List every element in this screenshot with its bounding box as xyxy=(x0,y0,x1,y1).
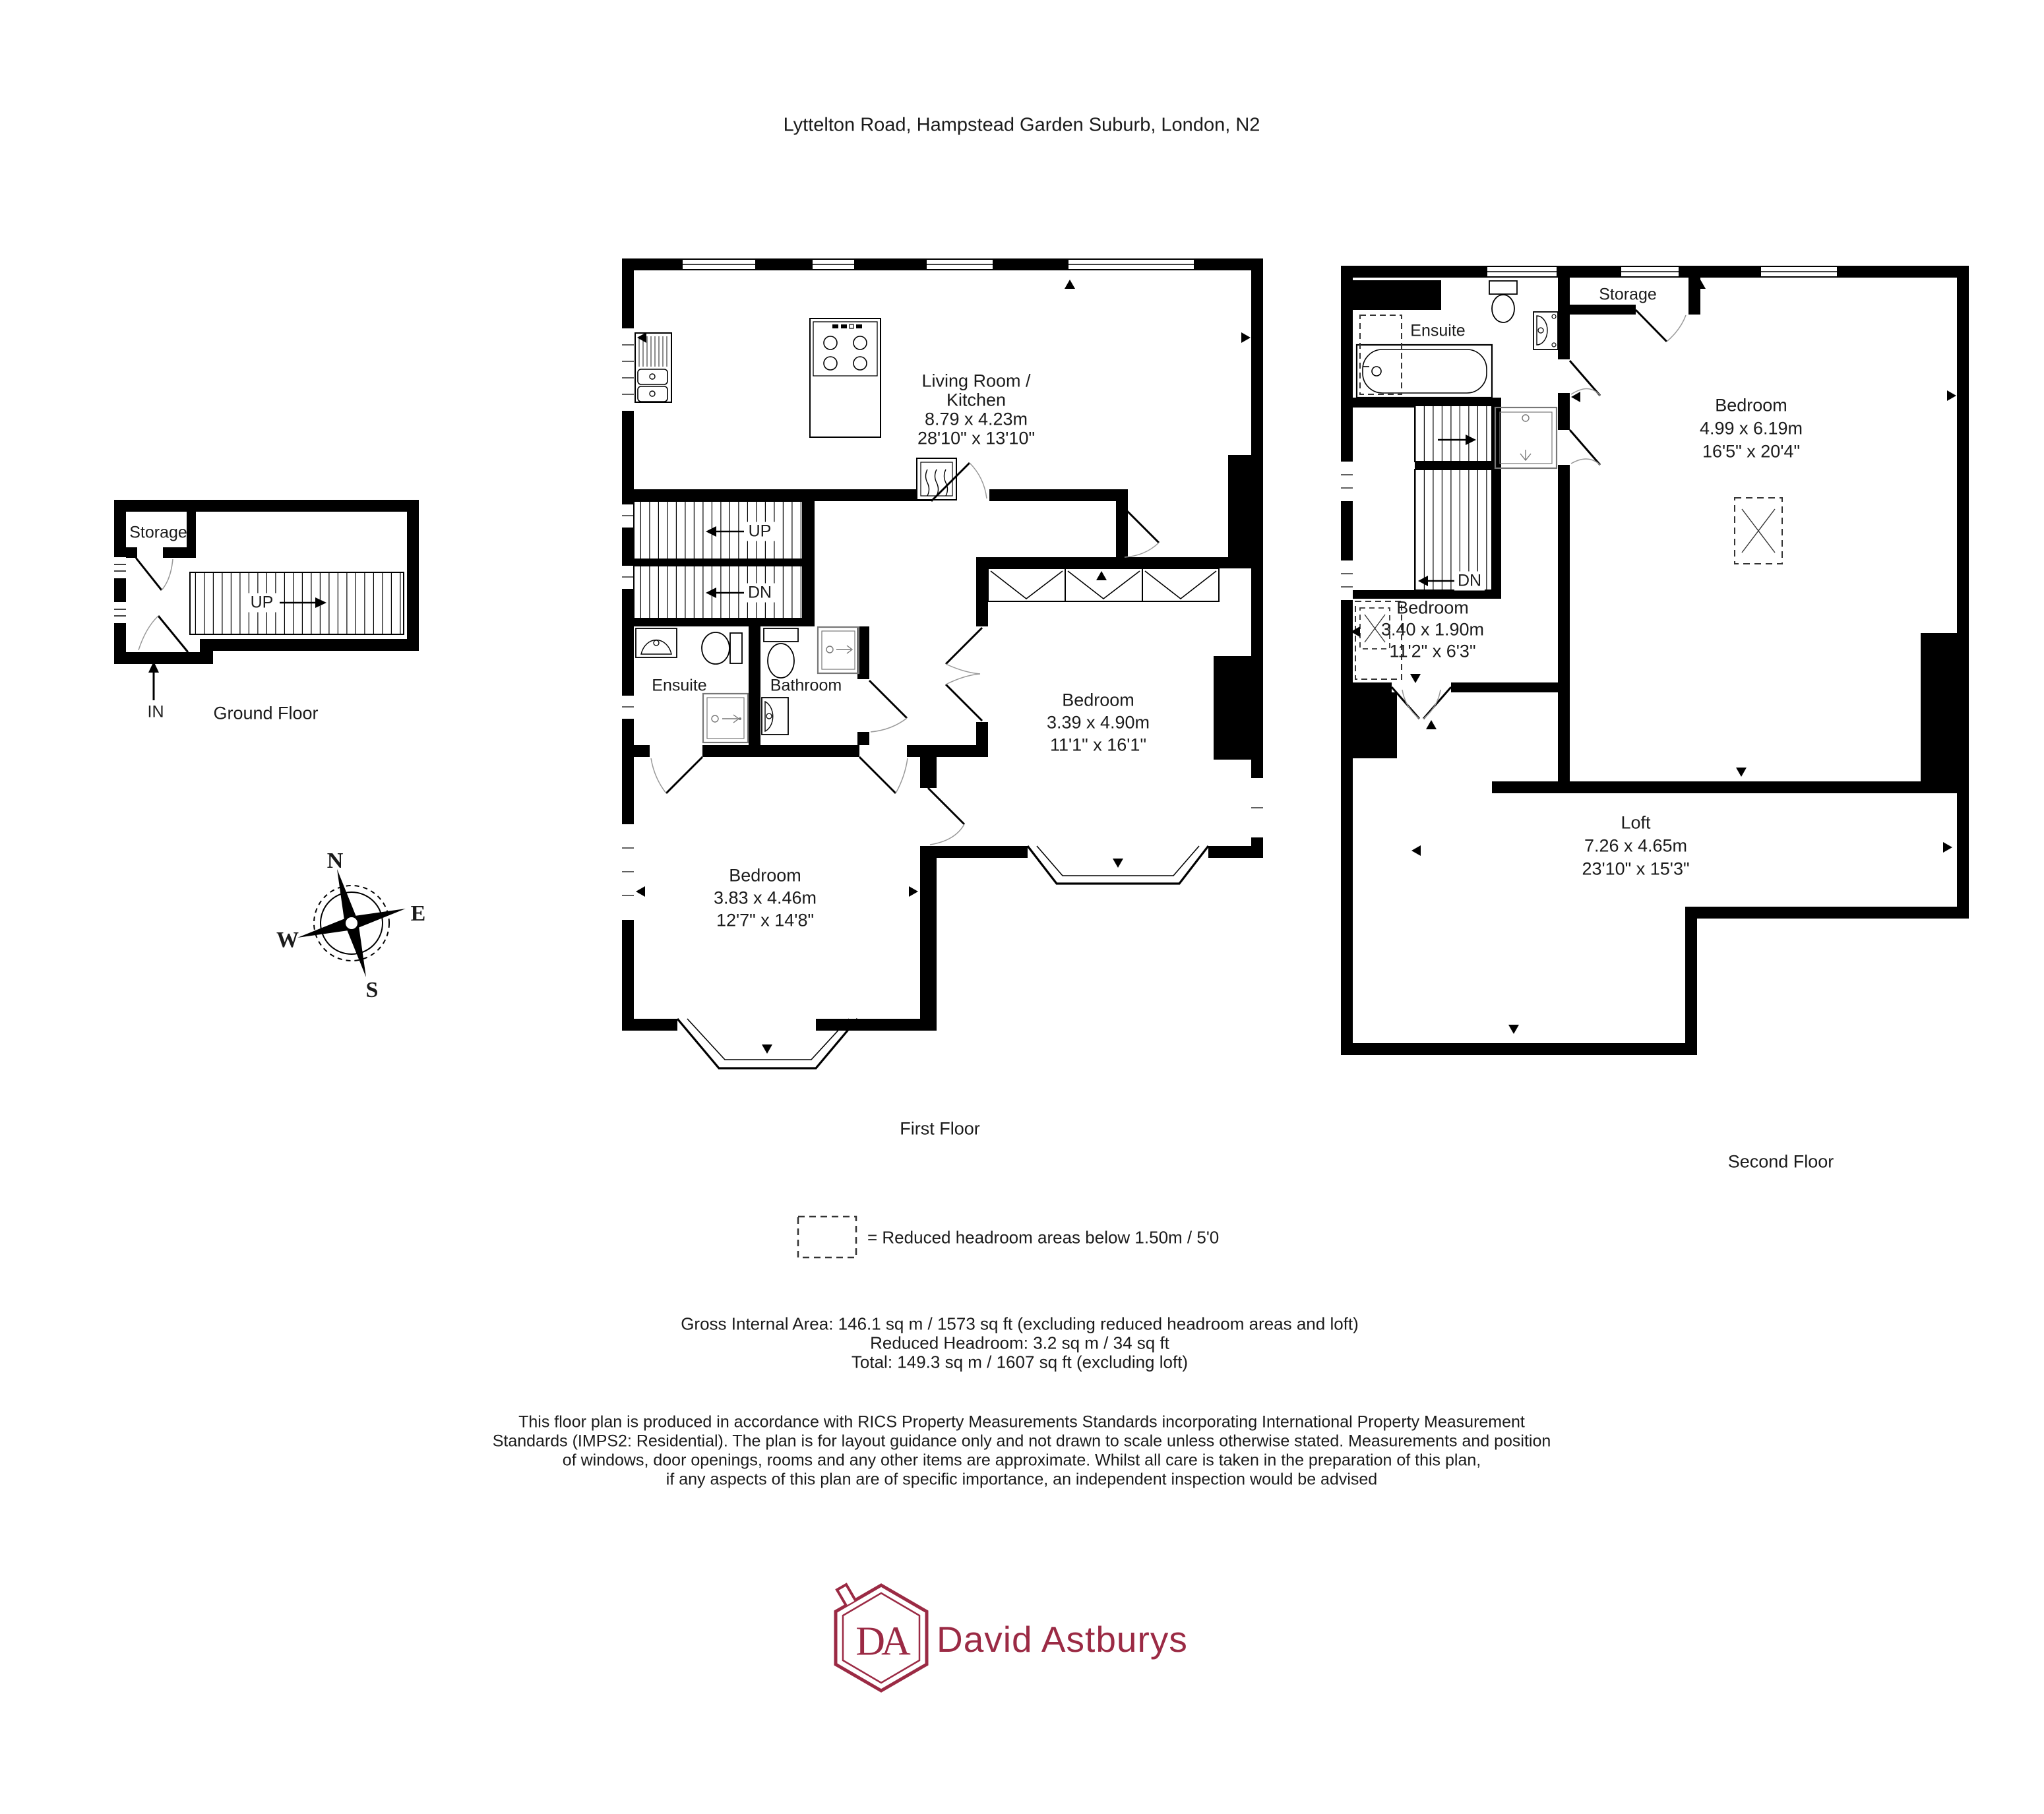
compass-south-label: S xyxy=(366,978,379,1003)
bedroom-small-dims-imperial: 11'2" x 6'3" xyxy=(1389,642,1475,662)
entrance-in-label: IN xyxy=(148,703,164,722)
legend-reduced-headroom-swatch xyxy=(798,1217,856,1257)
first-bathroom-label: Bathroom xyxy=(770,677,842,696)
disclaimer-line2: Standards (IMPS2: Residential). The plan… xyxy=(493,1432,1551,1451)
entrance-arrow-icon xyxy=(148,661,159,700)
logo-wordmark: David Astburys xyxy=(937,1618,1188,1660)
gross-internal-area-text: Gross Internal Area: 146.1 sq m / 1573 s… xyxy=(681,1314,1359,1335)
kitchen-island-hob xyxy=(810,318,881,437)
ensuite-shower-icon xyxy=(703,694,748,742)
page-title: Lyttelton Road, Hampstead Garden Suburb,… xyxy=(784,115,1260,136)
floorplan-page: Lyttelton Road, Hampstead Garden Suburb,… xyxy=(0,0,2044,1814)
total-area-text: Total: 149.3 sq m / 1607 sq ft (excludin… xyxy=(852,1352,1188,1373)
compass-north-label: N xyxy=(327,849,344,874)
roof-window-main-bedroom xyxy=(1735,498,1782,564)
second-stairs-dn-label: DN xyxy=(1454,572,1485,591)
bathroom-sink-icon xyxy=(762,698,788,735)
second-floor-title: Second Floor xyxy=(1728,1152,1834,1172)
living-room-dims-metric: 8.79 x 4.23m xyxy=(925,409,1028,430)
loft-dims-metric: 7.26 x 4.65m xyxy=(1584,836,1687,857)
bedroom-left-name: Bedroom xyxy=(729,866,801,886)
reduced-headroom-area xyxy=(1355,601,1402,679)
first-floor-title: First Floor xyxy=(900,1119,980,1139)
bedroom-main-name: Bedroom xyxy=(1715,396,1787,416)
reduced-headroom-area-text: Reduced Headroom: 3.2 sq m / 34 sq ft xyxy=(870,1333,1169,1354)
ensuite-toilet-icon xyxy=(702,632,742,664)
first-stairs-up-label: UP xyxy=(745,522,775,541)
bedroom-main-dims-imperial: 16'5" x 20'4" xyxy=(1702,442,1800,462)
first-floor-stairs xyxy=(634,501,803,626)
oven-icon xyxy=(917,458,956,500)
bedroom-right-name: Bedroom xyxy=(1062,690,1134,711)
bedroom-small-dims-metric: 3.40 x 1.90m xyxy=(1381,620,1484,640)
ground-floor-doors xyxy=(136,558,188,652)
bathroom-shower-icon xyxy=(818,627,859,673)
first-floor-direction-arrows xyxy=(636,280,1251,1054)
first-ensuite-label: Ensuite xyxy=(652,677,706,696)
logo-initials: DA xyxy=(855,1619,907,1666)
loft-name: Loft xyxy=(1621,813,1650,833)
second-ensuite-sink-icon xyxy=(1533,312,1558,349)
second-ensuite-toilet-icon xyxy=(1489,281,1517,322)
living-room-name-line1: Living Room / xyxy=(921,371,1030,392)
living-room-name-line2: Kitchen xyxy=(946,390,1006,411)
bedroom-right-dims-metric: 3.39 x 4.90m xyxy=(1047,713,1150,733)
ground-storage-label: Storage xyxy=(129,524,187,543)
bathtub-icon xyxy=(1357,345,1492,398)
second-floor-shower-icon xyxy=(1495,408,1557,468)
disclaimer-line4: if any aspects of this plan are of speci… xyxy=(666,1470,1377,1490)
compass-icon xyxy=(297,869,406,977)
compass-east-label: E xyxy=(411,901,426,926)
ground-floor-stairs xyxy=(190,572,404,634)
disclaimer-line3: of windows, door openings, rooms and any… xyxy=(563,1451,1481,1470)
floorplan-graphics xyxy=(0,0,2044,1814)
bedroom-left-dims-met ric: 3.83 x 4.46m xyxy=(714,888,817,909)
ground-stairs-up-label: UP xyxy=(247,593,277,613)
first-stairs-dn-label: DN xyxy=(745,584,775,603)
second-floor-stairs xyxy=(1415,406,1492,590)
loft-dims-imperial: 23'10" x 15'3" xyxy=(1582,859,1689,880)
living-room-dims-imperial: 28'10" x 13'10" xyxy=(917,429,1035,449)
kitchen-sink-unit xyxy=(635,333,671,402)
bedroom-main-dims-metric: 4.99 x 6.19m xyxy=(1700,419,1803,439)
second-storage-label: Storage xyxy=(1599,286,1657,305)
legend-reduced-headroom-text: = Reduced headroom areas below 1.50m / 5… xyxy=(867,1228,1219,1248)
bathroom-toilet-icon xyxy=(764,628,798,678)
wardrobe-icon xyxy=(988,568,1219,601)
bedroom-left-dims-imperial: 12'7" x 14'8" xyxy=(716,911,814,931)
ensuite-sink-icon xyxy=(636,628,677,657)
second-ensuite-label: Ensuite xyxy=(1410,322,1465,341)
disclaimer-line1: This floor plan is produced in accordanc… xyxy=(518,1413,1525,1432)
bedroom-small-name: Bedroom xyxy=(1396,598,1469,619)
ground-floor-title: Ground Floor xyxy=(213,704,318,724)
compass-west-label: W xyxy=(276,928,299,953)
bedroom-right-dims-imperial: 11'1" x 16'1" xyxy=(1050,735,1146,756)
